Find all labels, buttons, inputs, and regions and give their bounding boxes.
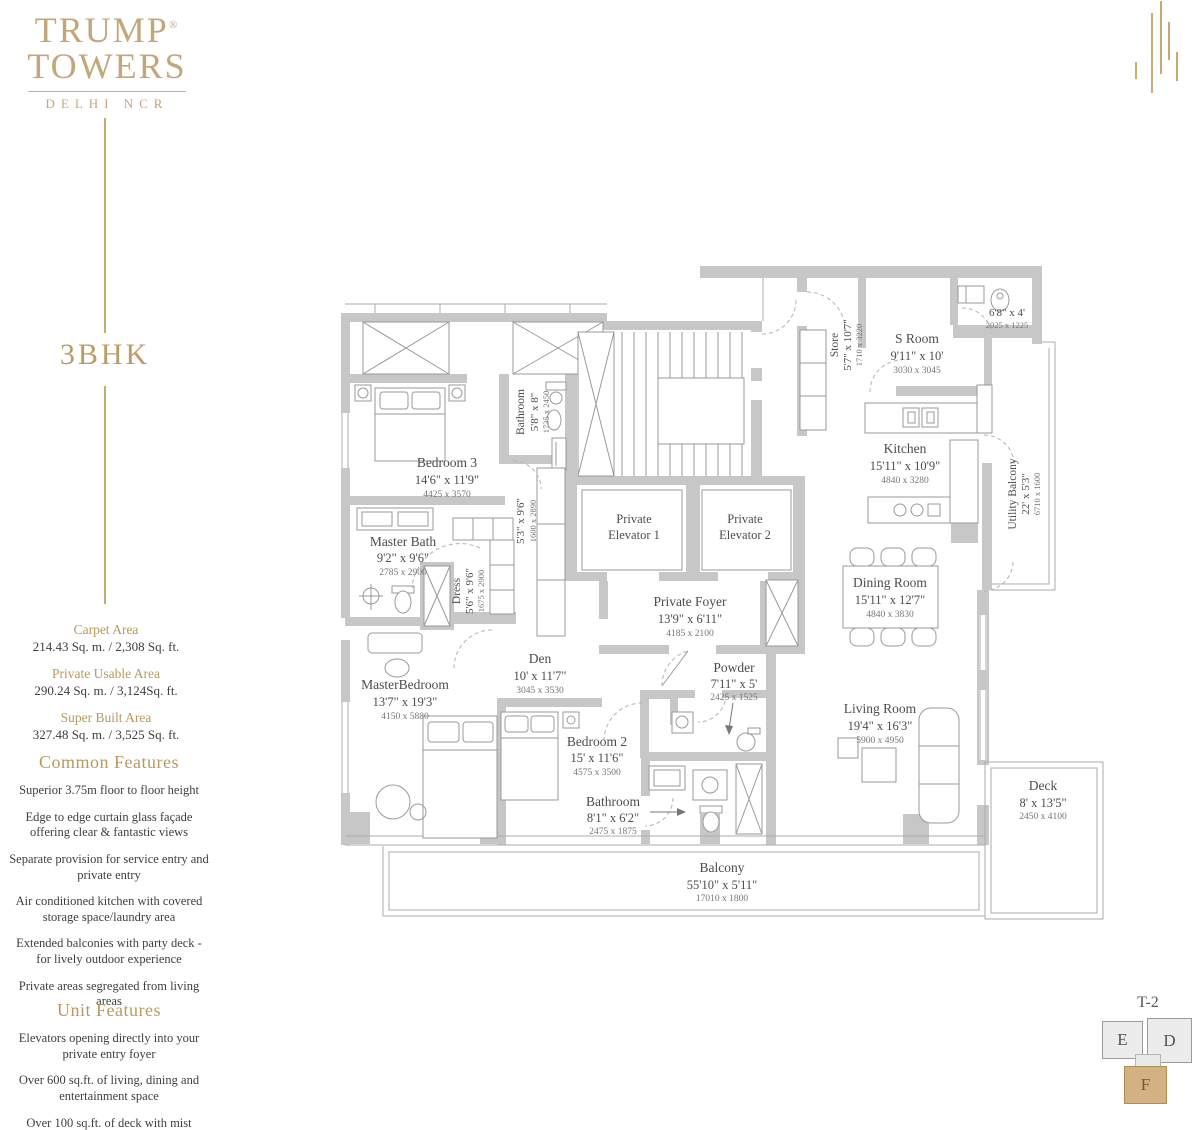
svg-text:10' x 11'7": 10' x 11'7" (514, 669, 567, 683)
label-s-room: S Room 9'11" x 10' 3030 x 3045 (891, 331, 944, 376)
sofa (919, 708, 959, 823)
floor-plan: Bedroom 3 14'6" x 11'9" 4425 x 3570 Bath… (0, 0, 1200, 1130)
svg-text:4575 x 3500: 4575 x 3500 (573, 768, 621, 778)
svg-text:15' x 11'6": 15' x 11'6" (571, 751, 624, 765)
label-store: Store 5'7" x 10'7" 1710 x 3220 (829, 319, 864, 370)
key-plan: T-2 E D F (1096, 994, 1200, 1124)
svg-text:3045 x 3530: 3045 x 3530 (516, 686, 564, 696)
svg-text:1600 x 2890: 1600 x 2890 (528, 500, 538, 543)
svg-text:Deck: Deck (1029, 778, 1058, 793)
svg-text:4840 x 3280: 4840 x 3280 (881, 476, 929, 486)
svg-text:2475 x 1875: 2475 x 1875 (589, 827, 637, 837)
floorplan-page: TRUMP® TOWERS DELHI NCR 3BHK Carpet Area… (0, 0, 1200, 1130)
label-deck: Deck 8' x 13'5" 2450 x 4100 (1019, 778, 1067, 822)
keyplan-unit-f-highlighted: F (1124, 1066, 1167, 1104)
stair-landing (658, 378, 744, 444)
svg-text:9'2" x 9'6": 9'2" x 9'6" (377, 551, 429, 565)
svg-text:Bathroom: Bathroom (586, 794, 640, 809)
svg-text:Bedroom 3: Bedroom 3 (417, 455, 478, 470)
svg-text:55'10" x 5'11": 55'10" x 5'11" (687, 878, 758, 892)
label-bedroom3: Bedroom 3 14'6" x 11'9" 4425 x 3570 (415, 455, 479, 500)
balcony-inner-line (389, 852, 979, 910)
svg-text:5'3" x 9'6": 5'3" x 9'6" (515, 498, 527, 544)
utility-balcony-outline (992, 342, 1055, 590)
svg-text:Dining Room: Dining Room (853, 575, 927, 590)
svg-text:6710 x 1600: 6710 x 1600 (1032, 473, 1042, 516)
label-passage: 5'3" x 9'6" 1600 x 2890 (515, 498, 538, 544)
svg-text:2450 x 4100: 2450 x 4100 (1019, 812, 1067, 822)
svg-text:Powder: Powder (713, 660, 755, 675)
svg-text:1735 x 2450: 1735 x 2450 (541, 391, 551, 434)
svg-text:8'1" x 6'2": 8'1" x 6'2" (587, 811, 639, 825)
svg-text:Master Bath: Master Bath (370, 534, 437, 549)
label-bedroom2: Bedroom 2 15' x 11'6" 4575 x 3500 (567, 734, 627, 778)
staircase (622, 332, 744, 476)
label-private-foyer: Private Foyer 13'9" x 6'11" 4185 x 2100 (653, 594, 727, 639)
svg-text:Living Room: Living Room (844, 701, 917, 716)
tower-label: T-2 (1096, 994, 1200, 1012)
svg-text:5900 x 4950: 5900 x 4950 (856, 736, 904, 746)
label-bathroom2: Bathroom 8'1" x 6'2" 2475 x 1875 (586, 794, 640, 837)
label-powder: Powder 7'11" x 5' 2425 x 1525 (710, 660, 758, 703)
svg-text:2025 x 1225: 2025 x 1225 (986, 320, 1029, 330)
svg-text:5'7" x 10'7": 5'7" x 10'7" (842, 319, 854, 370)
svg-text:15'11" x 12'7": 15'11" x 12'7" (855, 593, 926, 607)
svg-text:9'11" x 10': 9'11" x 10' (891, 349, 944, 363)
svg-text:6'8" x 4': 6'8" x 4' (989, 307, 1025, 319)
svg-text:4840 x 3830: 4840 x 3830 (866, 610, 914, 620)
label-balcony: Balcony 55'10" x 5'11" 17010 x 1800 (687, 860, 758, 904)
svg-text:Den: Den (529, 651, 552, 666)
svg-text:3030 x 3045: 3030 x 3045 (893, 366, 941, 376)
svg-text:Balcony: Balcony (700, 860, 745, 875)
svg-text:1710 x 3220: 1710 x 3220 (854, 324, 864, 367)
svg-text:1675 x 2900: 1675 x 2900 (476, 570, 486, 613)
label-utility-balcony: Utility Balcony 22' x 5'3" 6710 x 1600 (1007, 458, 1042, 529)
svg-text:Elevator 1: Elevator 1 (608, 528, 660, 542)
svg-text:Private: Private (616, 512, 652, 526)
svg-text:22' x 5'3": 22' x 5'3" (1020, 473, 1032, 514)
svg-text:Bedroom 2: Bedroom 2 (567, 734, 627, 749)
svg-text:Kitchen: Kitchen (884, 441, 927, 456)
svg-text:MasterBedroom: MasterBedroom (361, 677, 449, 692)
svg-text:7'11" x 5': 7'11" x 5' (711, 677, 758, 691)
label-bathroom3: Bathroom 5'8" x 8" 1735 x 2450 (515, 389, 551, 435)
svg-text:Utility Balcony: Utility Balcony (1007, 458, 1019, 529)
svg-text:Private Foyer: Private Foyer (653, 594, 727, 609)
balcony-outline (383, 846, 985, 916)
svg-text:14'6" x 11'9": 14'6" x 11'9" (415, 473, 479, 487)
svg-text:Private: Private (727, 512, 763, 526)
svg-text:13'9" x 6'11": 13'9" x 6'11" (658, 612, 722, 626)
svg-text:Bathroom: Bathroom (515, 389, 527, 435)
label-den: Den 10' x 11'7" 3045 x 3530 (514, 651, 567, 696)
svg-text:Dress: Dress (451, 577, 463, 604)
svg-text:5'6" x 9'6": 5'6" x 9'6" (464, 568, 476, 614)
svg-text:5'8" x 8": 5'8" x 8" (529, 393, 541, 431)
svg-text:17010 x 1800: 17010 x 1800 (696, 894, 749, 904)
svg-text:4425 x 3570: 4425 x 3570 (423, 490, 471, 500)
svg-text:Elevator 2: Elevator 2 (719, 528, 771, 542)
svg-text:S Room: S Room (895, 331, 939, 346)
svg-text:15'11" x 10'9": 15'11" x 10'9" (870, 459, 941, 473)
utility-balcony-inner-line (992, 348, 1049, 584)
label-master-bedroom: MasterBedroom 13'7" x 19'3" 4150 x 5880 (361, 677, 449, 722)
svg-text:13'7" x 19'3": 13'7" x 19'3" (373, 695, 438, 709)
svg-text:8' x 13'5": 8' x 13'5" (1019, 796, 1066, 810)
label-master-bath: Master Bath 9'2" x 9'6" 2785 x 2900 (370, 534, 437, 578)
svg-text:2785 x 2900: 2785 x 2900 (379, 568, 427, 578)
svg-text:2425 x 1525: 2425 x 1525 (710, 693, 758, 703)
svg-text:19'4" x 16'3": 19'4" x 16'3" (848, 719, 913, 733)
label-toilet: 6'8" x 4' 2025 x 1225 (986, 307, 1029, 330)
label-dress: Dress 5'6" x 9'6" 1675 x 2900 (451, 568, 486, 614)
label-kitchen: Kitchen 15'11" x 10'9" 4840 x 3280 (870, 441, 941, 486)
svg-text:Store: Store (829, 333, 841, 357)
svg-text:4150 x 5880: 4150 x 5880 (381, 712, 429, 722)
svg-text:4185 x 2100: 4185 x 2100 (666, 629, 714, 639)
